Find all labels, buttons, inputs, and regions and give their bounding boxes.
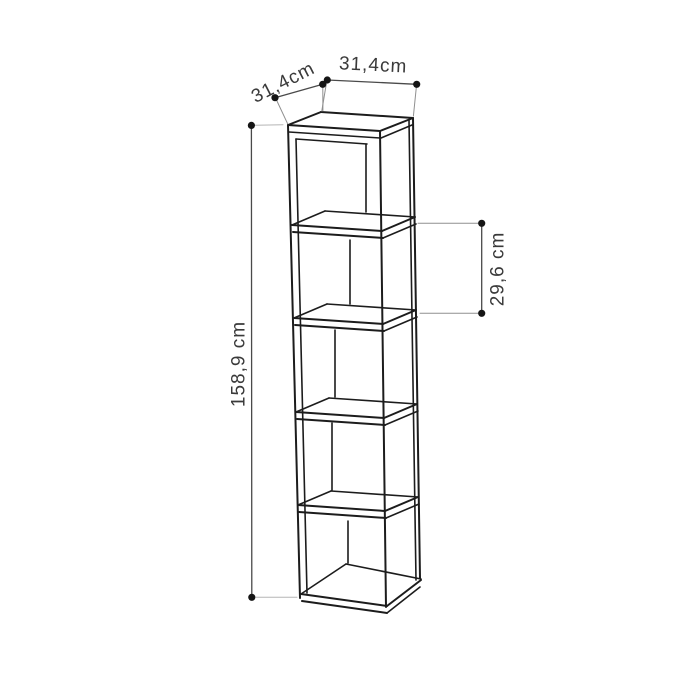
width-dimension-label: 31,4cm xyxy=(339,53,408,77)
bookshelf-dimension-diagram: 158,9 cm 31,4cm 31,4cm 29,6 c xyxy=(0,0,700,700)
dimension-height: 158,9 cm xyxy=(229,122,297,601)
dimension-compartment: 29,6 cm xyxy=(418,220,509,317)
diagram-canvas: 158,9 cm 31,4cm 31,4cm 29,6 c xyxy=(0,0,700,700)
dimension-endpoint-dot xyxy=(478,310,485,317)
bookshelf-bottom-panel xyxy=(301,564,421,613)
bookshelf-drawing xyxy=(288,112,421,613)
height-dimension-label: 158,9 cm xyxy=(229,321,250,407)
dimension-endpoint-dot xyxy=(248,122,255,129)
shelf-4 xyxy=(298,491,419,518)
dimension-endpoint-dot xyxy=(319,81,326,88)
compartment-dimension-label: 29,6 cm xyxy=(488,232,509,307)
dimension-endpoint-dot xyxy=(413,81,420,88)
dimension-endpoint-dot xyxy=(248,594,255,601)
shelf-2 xyxy=(294,304,417,331)
dimension-width: 31,4cm xyxy=(322,53,421,116)
shelf-1 xyxy=(292,211,416,238)
bookshelf-top-panel xyxy=(288,112,413,144)
bookshelf-frame xyxy=(288,118,420,607)
shelf-3 xyxy=(296,398,418,425)
dimension-endpoint-dot xyxy=(478,220,485,227)
depth-dimension-label: 31,4cm xyxy=(248,58,318,108)
